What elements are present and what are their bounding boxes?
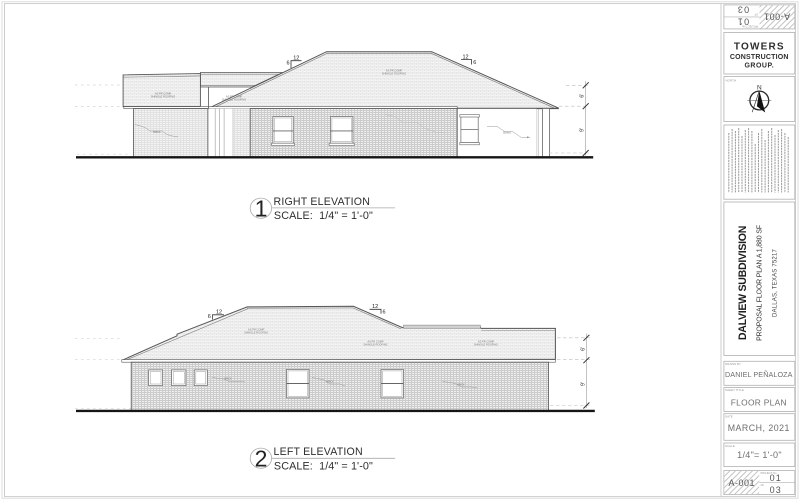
svg-text:6: 6 (382, 310, 385, 316)
svg-text:SCALE: 1/4" = 1'-0": SCALE: 1/4" = 1'-0" (274, 210, 373, 222)
svg-text:BRICK: BRICK (457, 383, 465, 386)
svg-text:DANIEL PEÑALOZA: DANIEL PEÑALOZA (725, 370, 793, 379)
svg-text:TOWERS: TOWERS (734, 41, 785, 52)
svg-text:6: 6 (473, 60, 476, 66)
svg-text:SIDING: SIDING (503, 131, 511, 134)
svg-text:1: 1 (255, 196, 268, 222)
svg-text:OF: OF (761, 483, 765, 487)
svg-text:01: 01 (770, 473, 782, 483)
svg-text:BRICK: BRICK (326, 380, 334, 383)
svg-text:SHINGLE ROOFING: SHINGLE ROOFING (363, 343, 387, 347)
svg-text:CONSTRUCTION: CONSTRUCTION (730, 54, 789, 61)
svg-text:DALVIEW SUBDIVISION: DALVIEW SUBDIVISION (737, 226, 749, 340)
svg-text:NORTH: NORTH (726, 79, 737, 83)
svg-text:FLOOR PLAN: FLOOR PLAN (731, 397, 787, 407)
svg-text:1/4"= 1'-0": 1/4"= 1'-0" (737, 450, 782, 460)
svg-text:LEFT ELEVATION: LEFT ELEVATION (274, 446, 363, 458)
svg-text:N: N (757, 84, 762, 91)
svg-text:6: 6 (286, 61, 289, 67)
svg-text:SHINGLE ROOFING: SHINGLE ROOFING (244, 330, 268, 334)
svg-text:12: 12 (293, 56, 299, 62)
svg-text:SHINGLE ROOFING: SHINGLE ROOFING (474, 343, 498, 347)
svg-text:6: 6 (208, 314, 211, 320)
svg-text:SHEET TITLE: SHEET TITLE (725, 388, 744, 392)
svg-text:SCALE: SCALE (725, 444, 735, 448)
svg-text:03: 03 (770, 485, 782, 495)
svg-text:12: 12 (372, 304, 378, 310)
svg-text:DATE: DATE (725, 414, 733, 418)
svg-text:PROPOSAL FLOOR PLAN A 1,880 SF: PROPOSAL FLOOR PLAN A 1,880 SF (757, 225, 764, 341)
svg-text:12: 12 (216, 310, 222, 316)
svg-text:SCALE: 1/4" = 1'-0": SCALE: 1/4" = 1'-0" (274, 460, 373, 472)
svg-text:DALLAS, TEXAS 75217: DALLAS, TEXAS 75217 (773, 249, 779, 318)
svg-text:BRICK: BRICK (153, 131, 161, 134)
svg-text:6': 6' (580, 94, 586, 98)
svg-text:2: 2 (255, 446, 268, 472)
svg-text:MARCH, 2021: MARCH, 2021 (728, 423, 790, 433)
svg-text:RIGHT ELEVATION: RIGHT ELEVATION (274, 196, 371, 208)
svg-text:DRAWN BY: DRAWN BY (725, 362, 741, 366)
svg-text:SHINGLE ROOFING: SHINGLE ROOFING (382, 71, 406, 75)
svg-text:9': 9' (580, 128, 586, 132)
svg-text:9': 9' (580, 382, 586, 386)
svg-text:12: 12 (462, 54, 468, 60)
svg-text:SHINGLE ROOFING: SHINGLE ROOFING (151, 95, 175, 99)
svg-text:GROUP.: GROUP. (744, 63, 774, 70)
svg-text:BRICK: BRICK (224, 378, 232, 381)
svg-text:6': 6' (580, 347, 586, 351)
svg-text:SHINGLE ROOFING: SHINGLE ROOFING (222, 97, 246, 101)
svg-text:A-001: A-001 (729, 478, 756, 488)
